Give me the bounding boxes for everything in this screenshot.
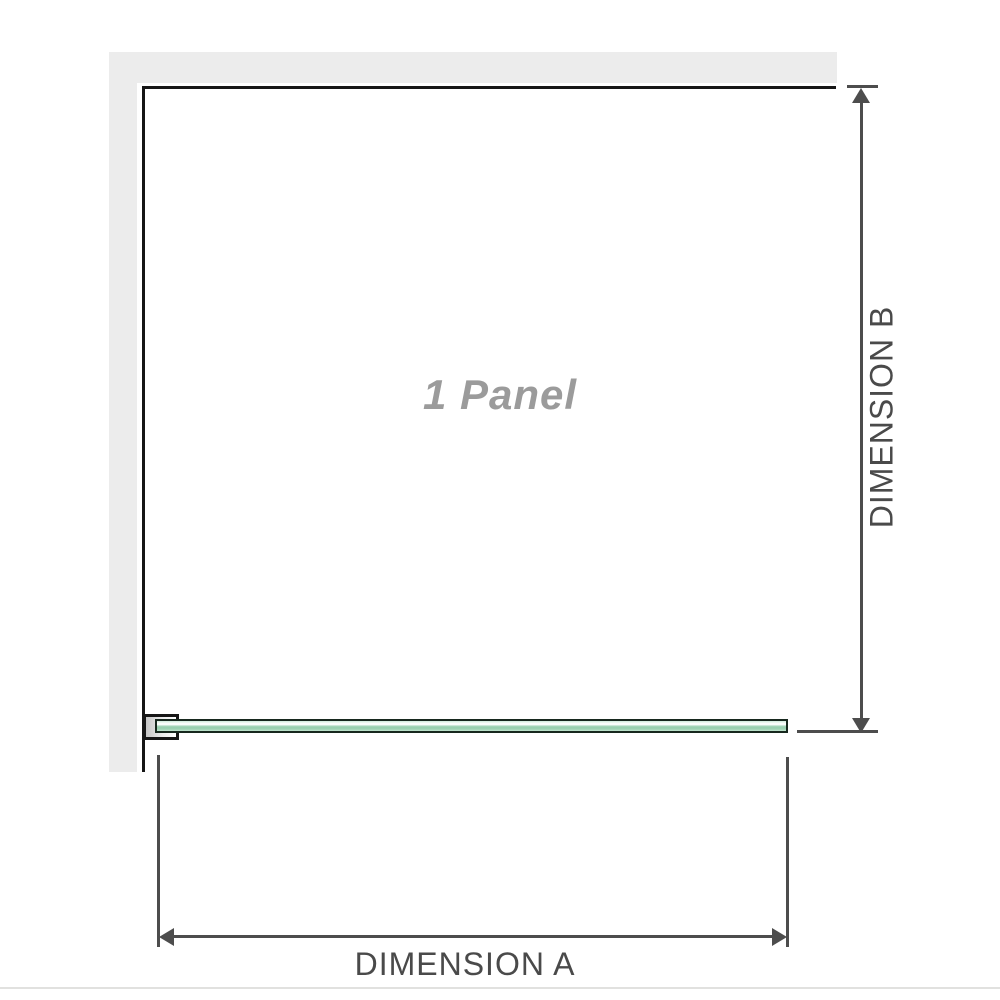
dimension-a-label: DIMENSION A: [315, 946, 615, 983]
bottom-divider: [0, 987, 1000, 989]
panel-dimension-diagram: 1 Panel DIMENSION B DIMENSION A: [0, 0, 1000, 1000]
dimension-b-label: DIMENSION B: [864, 306, 901, 529]
wall-top: [109, 52, 837, 83]
arrow-up-icon: [852, 88, 870, 103]
dimension-a-line: [172, 935, 774, 938]
arrow-left-icon: [159, 928, 174, 946]
panel-outline-top-line: [143, 86, 836, 89]
glass-panel: [155, 719, 788, 733]
panel-outline-left-line: [142, 86, 145, 772]
arrow-right-icon: [772, 928, 787, 946]
wall-left: [109, 52, 137, 772]
dimension-a-extension-right: [786, 757, 789, 947]
panel-count-label: 1 Panel: [350, 371, 650, 419]
dimension-a-extension-left: [157, 755, 160, 947]
arrow-down-icon: [852, 718, 870, 733]
